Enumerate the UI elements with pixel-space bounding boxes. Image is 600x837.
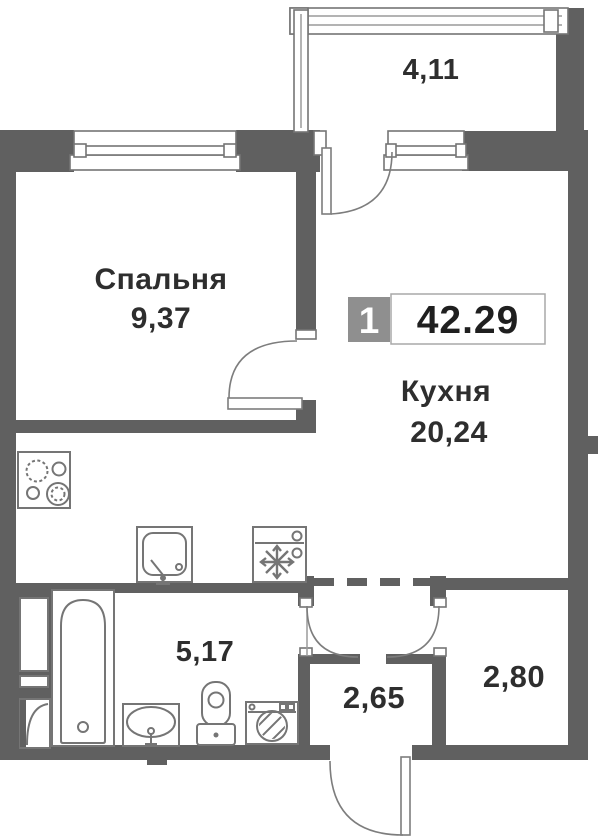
wall-segment [296, 168, 316, 338]
unit-badge: 1 42.29 [348, 294, 545, 344]
wall-segment [462, 131, 568, 171]
entry-area-label: 2,80 [483, 659, 545, 694]
bathroom-area-label: 5,17 [176, 636, 234, 668]
wall-segment [236, 130, 320, 172]
wall-segment [0, 130, 16, 760]
door-jamb [434, 648, 446, 656]
window-jamb [74, 144, 86, 157]
wall-segment [568, 130, 588, 760]
wall-segment [438, 578, 568, 590]
fridge-icon [253, 527, 306, 582]
door-jamb [300, 598, 312, 607]
hall-doors [300, 598, 446, 657]
balcony-area-label: 4,11 [403, 54, 460, 86]
wall-segment [412, 745, 588, 760]
kitchen-area-label: 20,24 [410, 416, 488, 449]
bathtub-icon [52, 590, 114, 746]
window-glazing [74, 146, 236, 155]
wall-segment [386, 654, 434, 664]
entrance-door [330, 757, 410, 835]
wall-segment [0, 130, 74, 172]
balcony-glazing-top [290, 8, 568, 34]
bedroom-area-label: 9,37 [131, 302, 191, 335]
kitchen-name-label: Кухня [401, 375, 491, 408]
window-jamb [456, 144, 466, 157]
window-frame [388, 131, 464, 147]
wall-segment [16, 420, 302, 433]
door-jamb [434, 598, 446, 607]
rooms-count-value: 1 [359, 300, 380, 341]
wall-segment [586, 436, 598, 454]
door-jamb [300, 648, 312, 656]
wall-segment [432, 654, 446, 748]
door-swing-arc [229, 341, 297, 398]
door-leaf [322, 148, 331, 214]
stove-icon [18, 452, 70, 508]
corner-fixture [20, 699, 50, 748]
window-jamb [386, 144, 396, 157]
kitchen-sink-icon [137, 527, 192, 584]
bedroom-door [228, 330, 316, 409]
door-swing-arc [331, 152, 392, 214]
floor-plan-canvas: 4,11 Спальня 9,37 Кухня 20,24 5,17 2,65 … [0, 0, 600, 837]
balcony-window [384, 131, 468, 170]
door-leaf [228, 398, 302, 409]
washing-machine-icon [246, 702, 298, 744]
bedroom-name-label: Спальня [94, 263, 227, 296]
door-swing-arc [307, 606, 358, 657]
balcony-glazing-end [544, 10, 558, 32]
door-leaf [401, 757, 410, 835]
wall-segment [298, 654, 310, 748]
window-sill [70, 155, 240, 170]
balcony-door [314, 131, 392, 214]
window-jamb [224, 144, 236, 157]
washbasin-icon [123, 704, 179, 746]
door-swing-arc [330, 761, 403, 835]
floor-plan: 4,11 Спальня 9,37 Кухня 20,24 5,17 2,65 … [0, 0, 600, 837]
hallway-area-label: 2,65 [343, 680, 405, 715]
door-swing-arc [387, 606, 439, 657]
bedroom-window [70, 131, 240, 170]
wall-segment [147, 760, 167, 765]
toilet-icon [197, 682, 235, 745]
window-glazing [388, 146, 464, 155]
door-jamb [296, 330, 316, 339]
total-area-value: 42.29 [417, 299, 520, 342]
